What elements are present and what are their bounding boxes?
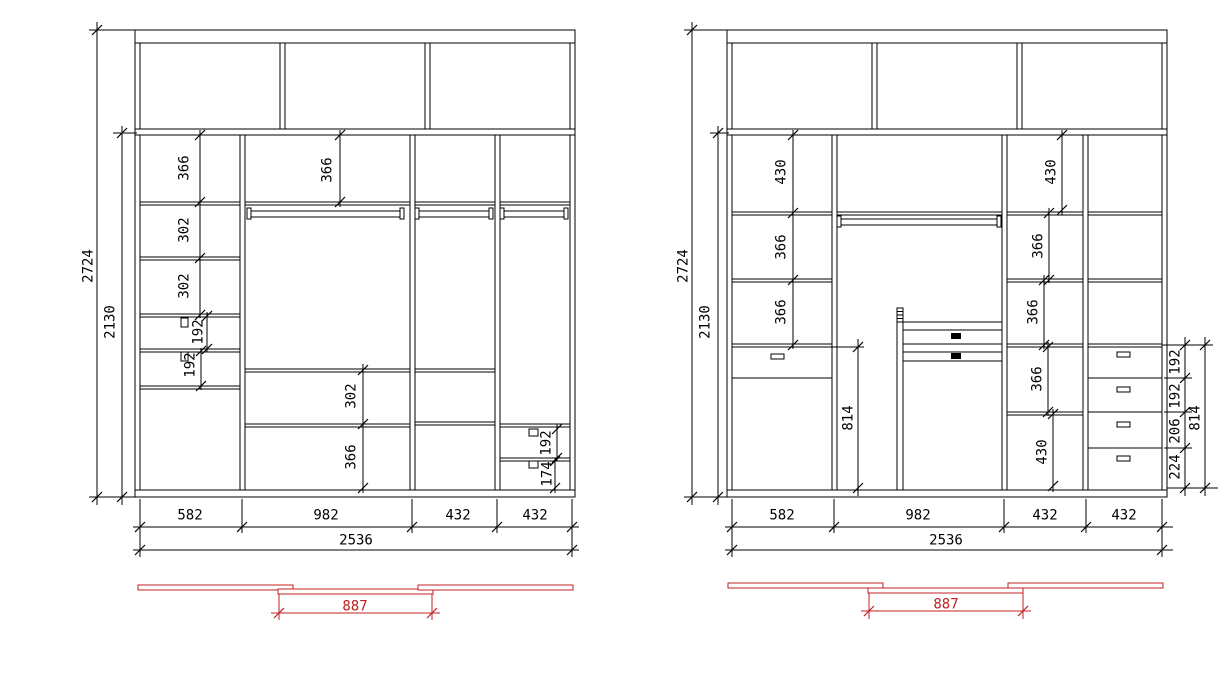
dim-label: 2130 bbox=[698, 305, 714, 339]
dim-label: 430 bbox=[774, 159, 790, 184]
dim-label: 2536 bbox=[339, 533, 373, 549]
pullout-post bbox=[897, 308, 903, 490]
dim-label: 814 bbox=[841, 405, 857, 430]
shelf bbox=[140, 386, 240, 389]
bottom-board bbox=[135, 490, 575, 497]
shelf bbox=[732, 212, 832, 215]
dim-label: 432 bbox=[1032, 508, 1057, 524]
dim-label: 302 bbox=[177, 273, 193, 298]
dim-label: 814 bbox=[1188, 405, 1204, 430]
dim-label: 192 bbox=[539, 430, 555, 455]
cad-drawing-canvas: 2724213036630230219219236630236619217458… bbox=[0, 0, 1232, 680]
divider-panel bbox=[495, 135, 500, 490]
dim-label: 366 bbox=[1026, 299, 1042, 324]
shelf bbox=[245, 424, 410, 427]
door-panel bbox=[278, 589, 433, 594]
shelf bbox=[140, 202, 240, 205]
dim-label: 366 bbox=[1031, 233, 1047, 258]
rod-bracket bbox=[400, 208, 404, 219]
drawer-handle bbox=[1117, 387, 1130, 392]
shelf bbox=[245, 369, 410, 372]
dim-label: 982 bbox=[313, 508, 338, 524]
dim-label: 430 bbox=[1035, 439, 1051, 464]
dim-label: 192 bbox=[183, 352, 199, 377]
divider-panel bbox=[832, 135, 837, 490]
shelf bbox=[140, 349, 240, 352]
hanging-rod bbox=[502, 211, 568, 217]
door-panel bbox=[1008, 583, 1163, 588]
wardrobe-elevations-svg: 2724213036630230219219236630236619217458… bbox=[0, 0, 1232, 680]
rod-bracket bbox=[837, 216, 841, 227]
shelf bbox=[1088, 212, 1162, 215]
rod-bracket bbox=[247, 208, 251, 219]
hanging-rod bbox=[417, 211, 493, 217]
dim-label: 366 bbox=[774, 299, 790, 324]
top-divider-panel bbox=[425, 43, 430, 130]
drawer-handle bbox=[1117, 456, 1130, 461]
dim-label: 366 bbox=[1030, 366, 1046, 391]
shelf bbox=[415, 369, 495, 372]
rod-bracket bbox=[564, 208, 568, 219]
dim-label: 206 bbox=[1168, 418, 1184, 443]
dim-label: 302 bbox=[344, 383, 360, 408]
pullout-rail bbox=[903, 322, 1002, 330]
dim-label: 430 bbox=[1044, 159, 1060, 184]
shelf bbox=[500, 202, 570, 205]
hanging-rod bbox=[249, 211, 402, 217]
top-divider-panel bbox=[1017, 43, 1022, 130]
dim-label: 2724 bbox=[81, 249, 97, 283]
bottom-board bbox=[727, 490, 1167, 497]
divider-panel bbox=[410, 135, 415, 490]
cabinet-top-frame bbox=[727, 30, 1167, 133]
shelf bbox=[1088, 279, 1162, 282]
dim-label: 366 bbox=[774, 234, 790, 259]
shelf bbox=[1088, 344, 1162, 347]
door-dim-label: 887 bbox=[342, 599, 367, 615]
dim-label: 432 bbox=[445, 508, 470, 524]
shelf bbox=[140, 257, 240, 260]
door-dim-label: 887 bbox=[933, 597, 958, 613]
pullout-box bbox=[903, 361, 1002, 490]
top-divider-panel bbox=[872, 43, 877, 130]
pullout-rail bbox=[903, 344, 1002, 352]
dim-label: 2724 bbox=[676, 249, 692, 283]
drawer-handle bbox=[529, 461, 538, 468]
shelf bbox=[245, 202, 410, 205]
shelf bbox=[415, 202, 495, 205]
shelf bbox=[837, 212, 1002, 215]
dim-label: 174 bbox=[540, 461, 556, 486]
rod-bracket bbox=[415, 208, 419, 219]
door-panel bbox=[418, 585, 573, 590]
top-divider-panel bbox=[280, 43, 285, 130]
dim-label: 192 bbox=[191, 319, 207, 344]
cabinet-top-frame bbox=[135, 30, 575, 133]
rod-bracket bbox=[500, 208, 504, 219]
rod-bracket bbox=[489, 208, 493, 219]
dim-label: 982 bbox=[905, 508, 930, 524]
dim-label: 302 bbox=[177, 217, 193, 242]
dim-label: 224 bbox=[1168, 454, 1184, 479]
dim-label: 192 bbox=[1168, 383, 1184, 408]
dim-label: 582 bbox=[769, 508, 794, 524]
divider-panel bbox=[1002, 135, 1007, 490]
divider-panel bbox=[240, 135, 245, 490]
drawer-handle bbox=[771, 354, 784, 359]
door-panel bbox=[138, 585, 293, 590]
shelf bbox=[415, 422, 495, 425]
unit-label-mark bbox=[951, 353, 961, 359]
hanging-rod bbox=[840, 219, 1000, 225]
drawer-handle bbox=[1117, 422, 1130, 427]
shelf bbox=[1007, 212, 1083, 215]
dim-label: 582 bbox=[177, 508, 202, 524]
drawer-handle bbox=[529, 429, 538, 436]
dim-label: 432 bbox=[522, 508, 547, 524]
unit-label-mark bbox=[951, 333, 961, 339]
dim-label: 2130 bbox=[103, 305, 119, 339]
dim-label: 366 bbox=[177, 155, 193, 180]
shelf bbox=[732, 279, 832, 282]
drawer-handle bbox=[181, 318, 188, 327]
dim-label: 432 bbox=[1111, 508, 1136, 524]
dim-label: 366 bbox=[344, 444, 360, 469]
shelf bbox=[140, 314, 240, 317]
dim-label: 366 bbox=[320, 157, 336, 182]
door-panel bbox=[728, 583, 883, 588]
rod-bracket bbox=[997, 216, 1001, 227]
dim-label: 192 bbox=[1168, 349, 1184, 374]
dim-label: 2536 bbox=[929, 533, 963, 549]
divider-panel bbox=[1083, 135, 1088, 490]
door-panel bbox=[868, 588, 1023, 593]
drawer-handle bbox=[1117, 352, 1130, 357]
